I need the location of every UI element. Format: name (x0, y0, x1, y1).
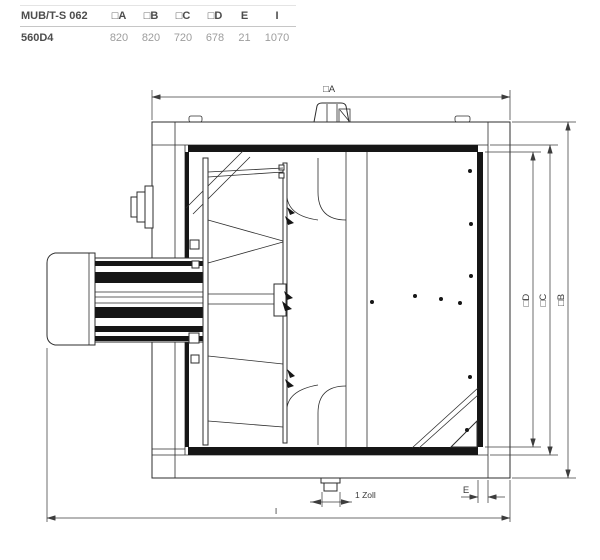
dim-c-label: □C (538, 294, 549, 307)
cable-gland (131, 186, 153, 228)
dim-d-label: □D (521, 294, 532, 307)
motor (47, 186, 278, 345)
inlet-bellmouth (287, 152, 367, 447)
dim-e-label: E (463, 485, 469, 496)
dim-i-label: I (275, 506, 277, 516)
drain-spigot (321, 478, 340, 491)
lifting-handle (314, 103, 350, 122)
backplate-clip (279, 165, 284, 170)
motor-end-cap (47, 253, 95, 345)
corner-brace-top-left (186, 151, 250, 214)
drain-arrow-right (341, 499, 351, 504)
rivet-dots (370, 169, 473, 379)
impeller-assembly (186, 151, 478, 448)
dimension-d: □D (485, 152, 541, 447)
dimension-i: I (47, 348, 510, 522)
dim-b-label: □B (556, 294, 567, 306)
motor-mounting-plate (203, 158, 208, 445)
drain-label: 1 Zoll (355, 490, 376, 500)
impeller-blades (208, 168, 283, 427)
corner-brace-bottom-right (412, 388, 478, 448)
dim-a-label: □A (323, 84, 336, 95)
lifting-tab-left (189, 116, 202, 122)
dimension-drain: 1 Zoll (310, 490, 376, 507)
impeller-hub (274, 284, 286, 316)
insulation-panels (185, 145, 483, 455)
drain-arrow-left (311, 499, 321, 504)
lifting-tab-right (455, 116, 470, 122)
dimension-e: E (461, 480, 505, 503)
fan-technical-drawing: □A □B □C □D E (0, 0, 600, 560)
fan-dimension-sheet: MUB/T-S 062 □A □B □C □D E I 560D4 820 82… (0, 0, 600, 560)
backplate-clip (279, 173, 284, 178)
